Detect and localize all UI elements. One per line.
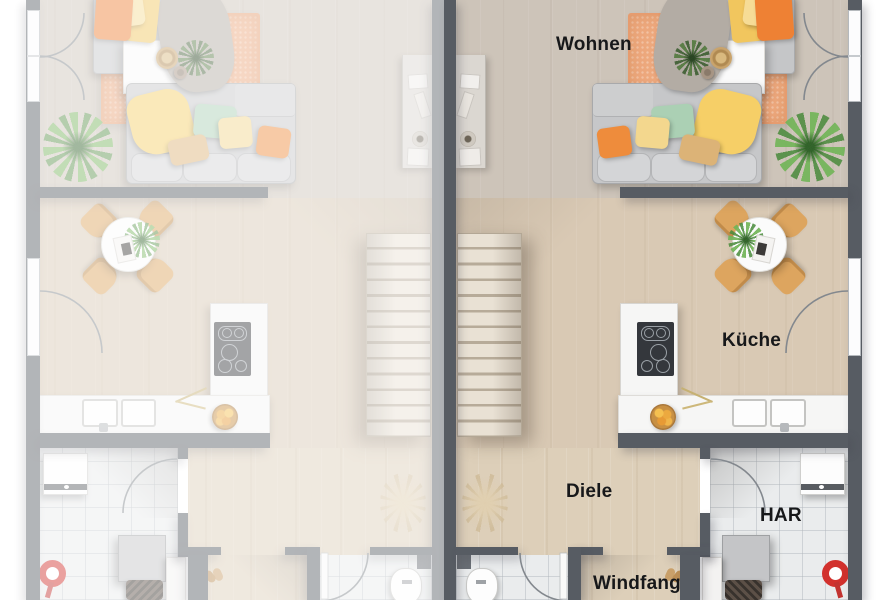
cooktop [214,322,251,376]
wall-bathroom-top [456,547,518,555]
unit-right [444,0,888,600]
sideboard-book-stack [407,147,430,166]
party-wall [444,0,456,600]
sideboard-bowl [460,131,476,147]
bathroom-sink-tap [476,580,486,584]
coffee-table-tray [710,47,732,69]
wall-hall-utility-upper [178,448,188,459]
bathroom-sink [390,568,422,600]
window-living-divider [27,55,40,57]
party-wall [432,0,444,600]
utility-cabinet [166,557,186,600]
sofa-armrest [593,84,653,117]
coffee-table-tray [156,47,178,69]
kitchen-faucet [99,423,108,432]
palm-plant [43,112,113,182]
dried-plant [462,473,508,533]
window-terrace-door [848,258,861,356]
room-label-hall: Diele [566,481,612,503]
washing-machine [43,453,88,495]
bathroom-sink [466,568,498,600]
fruit-bowl [650,404,676,430]
sofa-armrest [235,84,295,117]
sofa-pillow-pale-yellow [635,116,671,150]
freezer-box [118,535,166,582]
window-terrace-door [27,258,40,356]
kitchen-faucet [780,423,789,432]
sofa-pillow-orange [255,125,292,159]
freezer-box [722,535,770,582]
wall-kitchen-utility [40,433,270,448]
staircase [457,233,522,437]
wall-bathroom-top [370,547,432,555]
sofa-pillow-orange [596,125,633,159]
laundry-basket [725,580,762,600]
wall-living-stub [40,187,268,198]
staircase [366,233,431,437]
sideboard-books [408,73,429,89]
bathroom-shelf [457,553,471,569]
wall-vestibule-utility-v [188,555,208,600]
daybed-pillow-orange [93,0,133,41]
fruit-bowl [212,404,238,430]
coffee-table-vase [701,66,714,79]
daybed-pillow-orange [754,0,794,41]
sideboard-book-stack [459,147,482,166]
floor-plan: Wohnen Küche Diele Windfang HAR [0,0,888,600]
sofa-pillow-pale-yellow [218,116,254,150]
wall-living-stub [620,187,848,198]
wall-bathroom-vestibule-v [568,547,581,600]
room-label-kitchen: Küche [722,330,781,352]
kitchen-sink-basin [121,399,156,427]
wall-kitchen-utility [618,433,848,448]
coffee-table-vase [174,66,187,79]
wall-hall-utility-upper [700,448,710,459]
washing-machine [800,453,845,495]
dried-plant [380,473,426,533]
laundry-basket [126,580,163,600]
wall-vestibule-utility-v [680,555,700,600]
window-living-divider [848,55,861,57]
utility-cabinet [702,557,722,600]
wall-vestibule-utility-h [178,547,221,555]
palm-plant [775,112,845,182]
wall-bathroom-vestibule-v [307,547,320,600]
bathroom-shelf [417,553,431,569]
room-label-living: Wohnen [556,34,632,56]
room-label-utility: HAR [760,505,802,527]
sideboard-bowl [412,131,428,147]
sideboard-books [460,73,481,89]
unit-left [0,0,444,600]
bathroom-sink-tap [402,580,412,584]
wall-vestibule-utility-h [667,547,710,555]
cooktop [637,322,674,376]
room-label-vestibule: Windfang [593,573,681,595]
kitchen-sink-basin [732,399,767,427]
